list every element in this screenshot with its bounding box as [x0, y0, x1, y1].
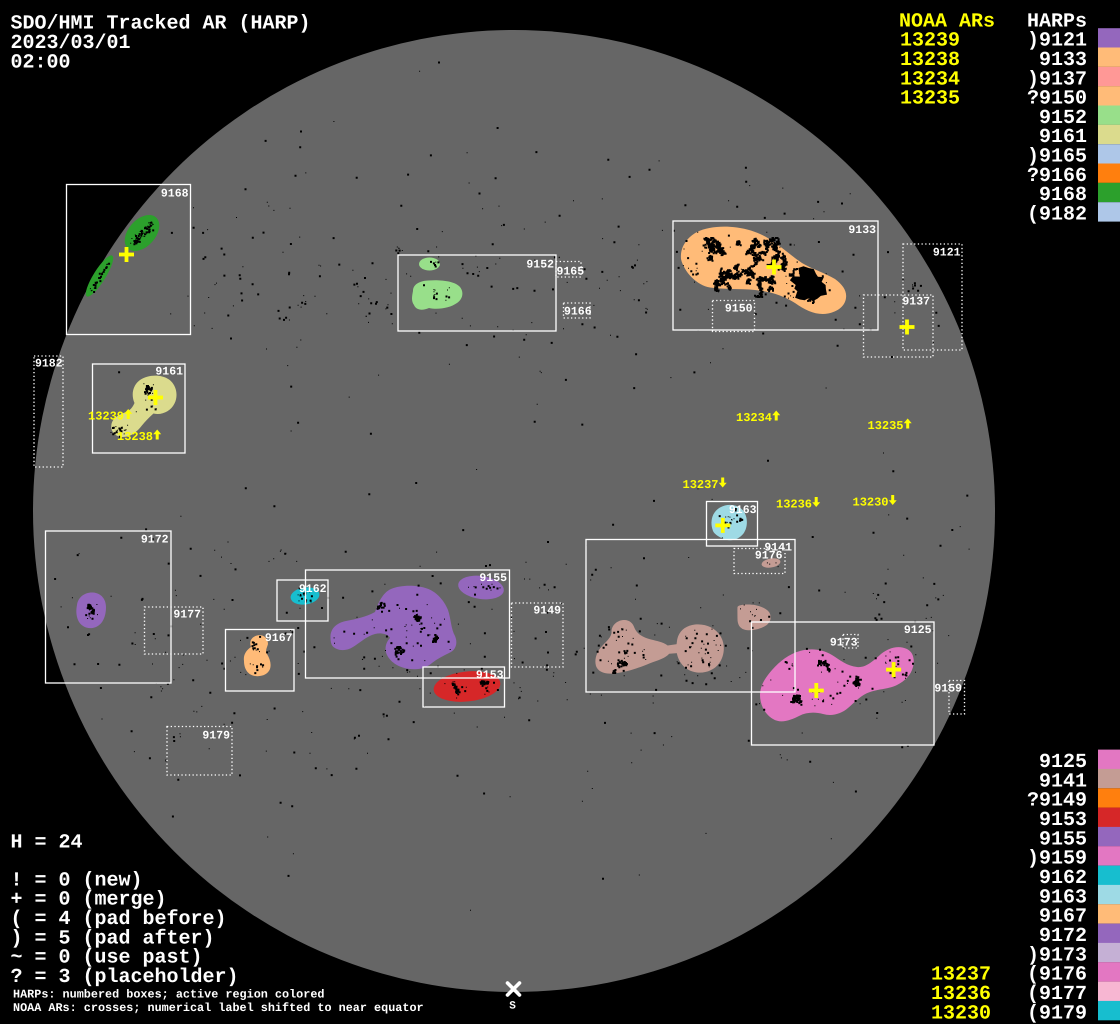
svg-text:13235: 13235 [868, 419, 904, 433]
svg-text:13236: 13236 [776, 498, 812, 512]
svg-text:9149: 9149 [533, 605, 561, 618]
svg-text:S: S [509, 1001, 516, 1013]
svg-text:9125: 9125 [904, 624, 932, 637]
svg-text:H = 24: H = 24 [11, 832, 83, 855]
svg-text:9162: 9162 [299, 583, 327, 596]
svg-text:9176: 9176 [755, 550, 783, 563]
svg-text:9153: 9153 [476, 669, 504, 682]
svg-text:9137: 9137 [902, 296, 930, 309]
svg-text:9161: 9161 [155, 366, 183, 379]
svg-text:9168: 9168 [161, 188, 189, 201]
svg-text:(9179: (9179 [1027, 1002, 1087, 1024]
svg-text:9167: 9167 [265, 632, 293, 645]
svg-text:02:00: 02:00 [11, 51, 71, 74]
svg-text:9121: 9121 [933, 247, 961, 260]
svg-text:9166: 9166 [564, 306, 592, 319]
svg-text:13238: 13238 [117, 430, 153, 444]
svg-text:9172: 9172 [141, 534, 169, 547]
svg-text:9133: 9133 [848, 224, 876, 237]
svg-text:13239: 13239 [88, 410, 124, 424]
svg-text:9177: 9177 [173, 609, 201, 622]
svg-text:13237: 13237 [683, 478, 719, 492]
svg-text:9165: 9165 [557, 266, 585, 279]
svg-text:13230: 13230 [853, 496, 889, 510]
svg-text:13234: 13234 [736, 411, 772, 425]
svg-text:? = 3 (placeholder): ? = 3 (placeholder) [11, 966, 239, 989]
svg-text:13235: 13235 [900, 88, 960, 111]
svg-text:9150: 9150 [725, 303, 753, 316]
svg-text:9155: 9155 [479, 572, 507, 585]
svg-text:9182: 9182 [35, 358, 63, 371]
svg-text:13230: 13230 [931, 1002, 991, 1024]
svg-text:9159: 9159 [934, 683, 962, 696]
svg-text:9163: 9163 [729, 504, 757, 517]
svg-text:(9182: (9182 [1027, 204, 1087, 227]
svg-text:9152: 9152 [526, 259, 554, 272]
svg-text:HARPs: numbered boxes; active: HARPs: numbered boxes; active region col… [13, 987, 325, 1001]
svg-text:9179: 9179 [202, 730, 230, 743]
svg-text:9173: 9173 [830, 637, 858, 650]
svg-text:NOAA ARs: crosses; numerical l: NOAA ARs: crosses; numerical label shift… [13, 1001, 424, 1015]
